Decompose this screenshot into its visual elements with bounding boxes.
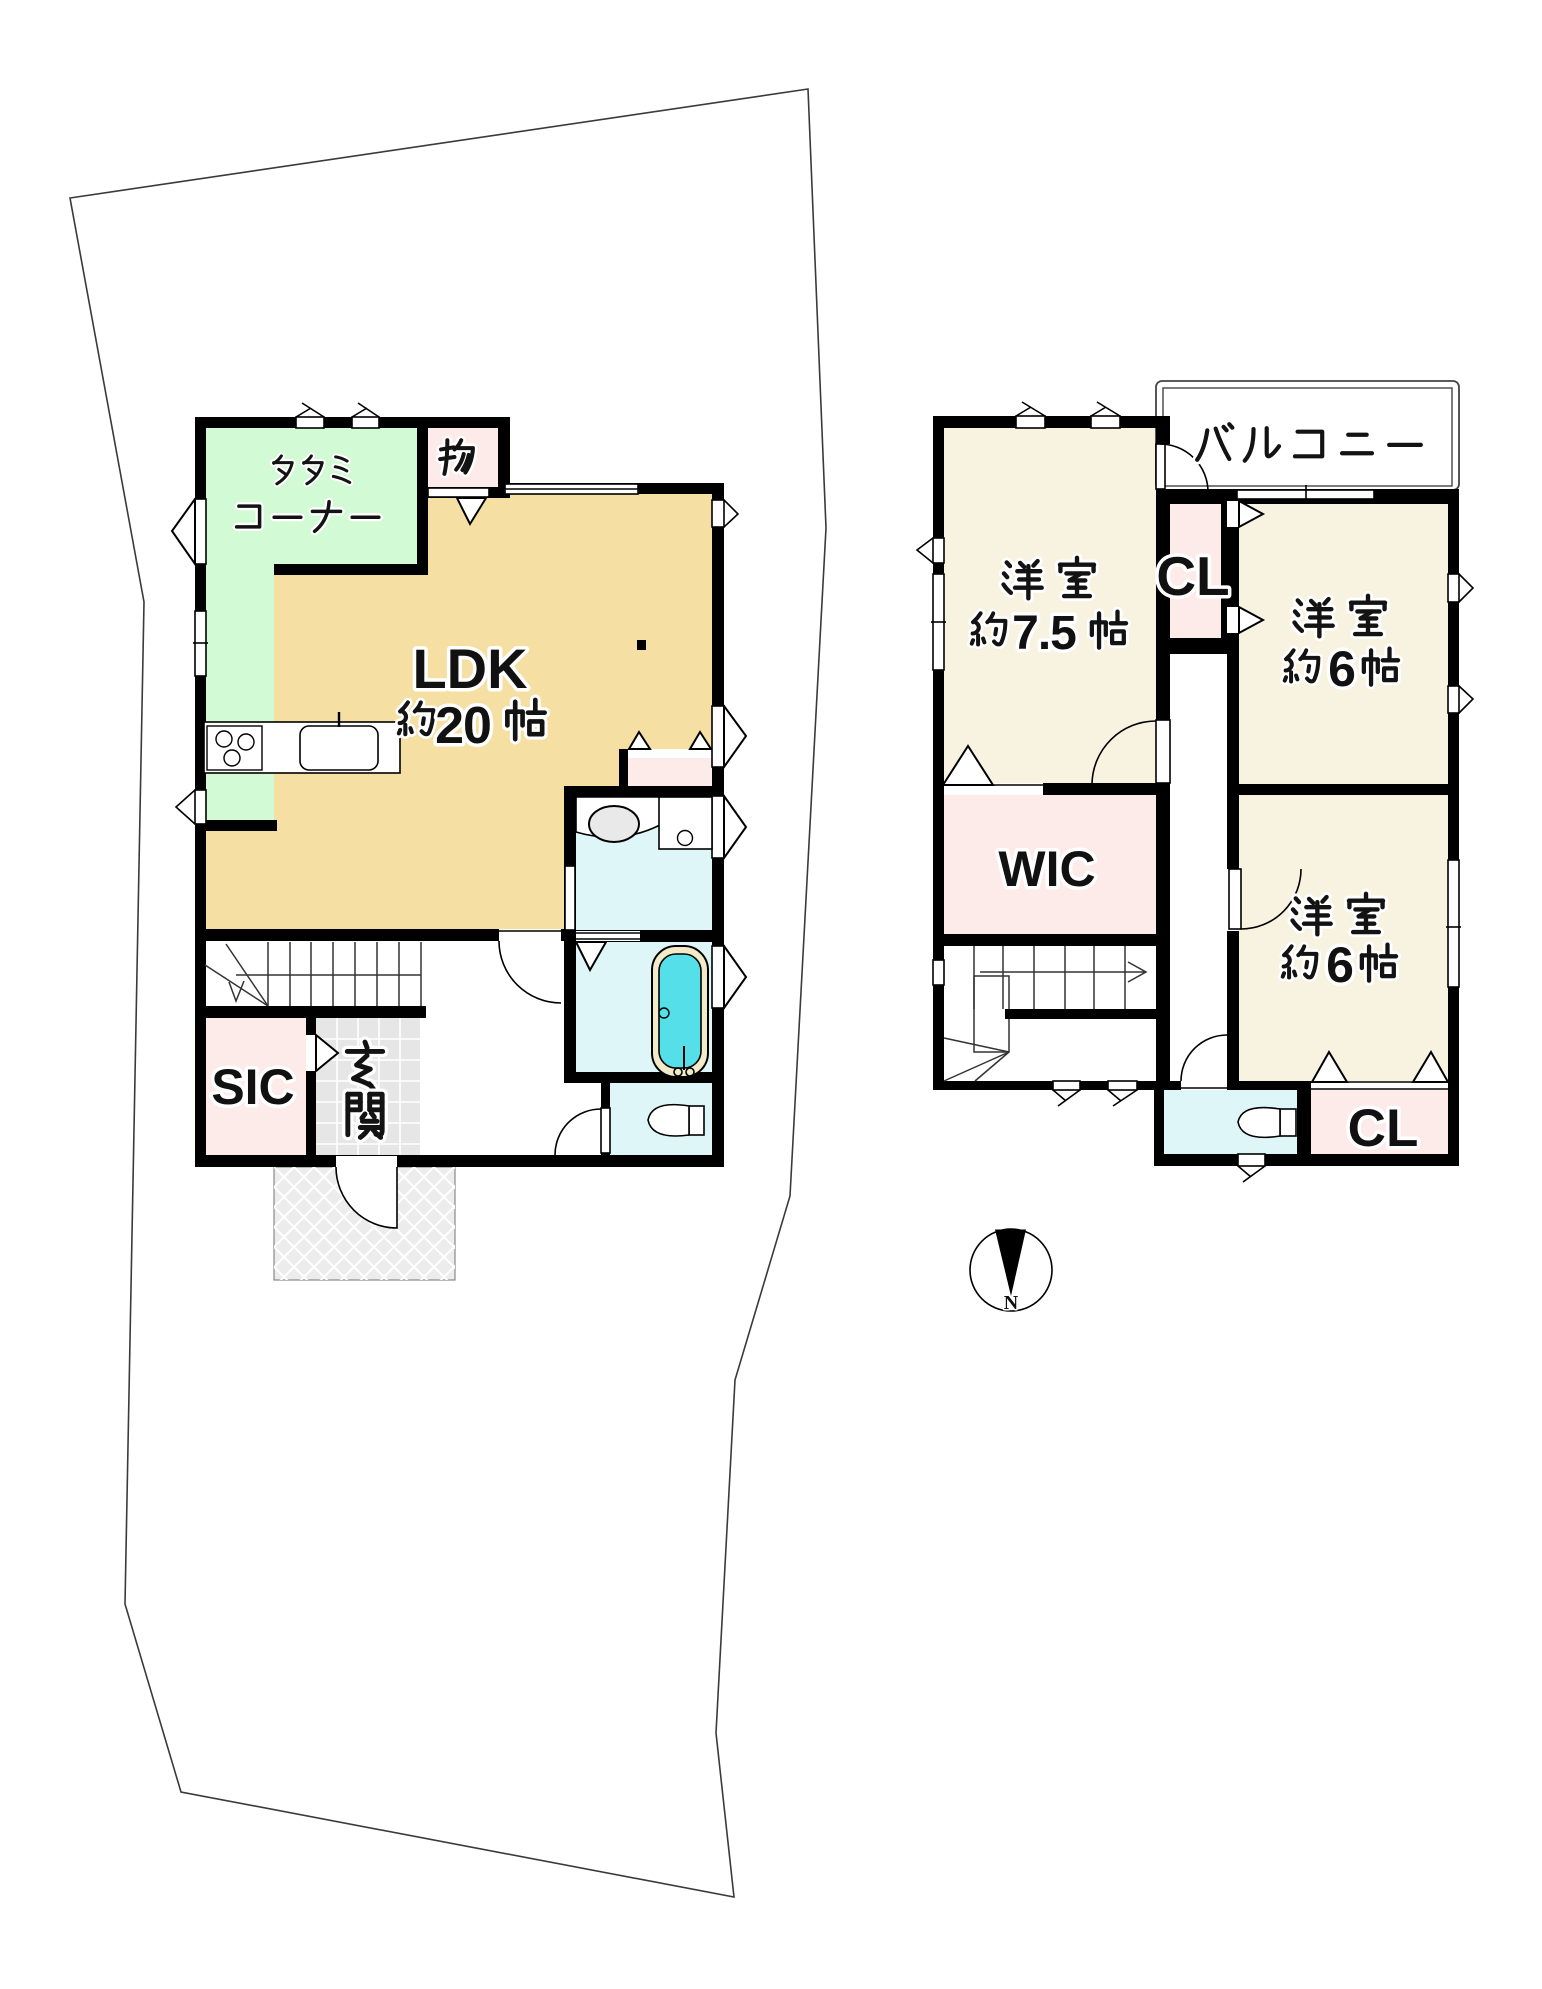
svg-text:7.5: 7.5 bbox=[1012, 607, 1076, 660]
svg-text:6: 6 bbox=[1328, 641, 1356, 697]
svg-text:CL: CL bbox=[1156, 545, 1229, 607]
svg-text:N: N bbox=[1004, 1292, 1019, 1314]
svg-text:CL: CL bbox=[1348, 1099, 1419, 1158]
svg-text:SIC: SIC bbox=[211, 1059, 294, 1115]
svg-text:20: 20 bbox=[435, 697, 491, 755]
svg-text:6: 6 bbox=[1326, 937, 1354, 993]
svg-text:WIC: WIC bbox=[998, 841, 1095, 897]
svg-text:LDK: LDK bbox=[412, 637, 527, 700]
